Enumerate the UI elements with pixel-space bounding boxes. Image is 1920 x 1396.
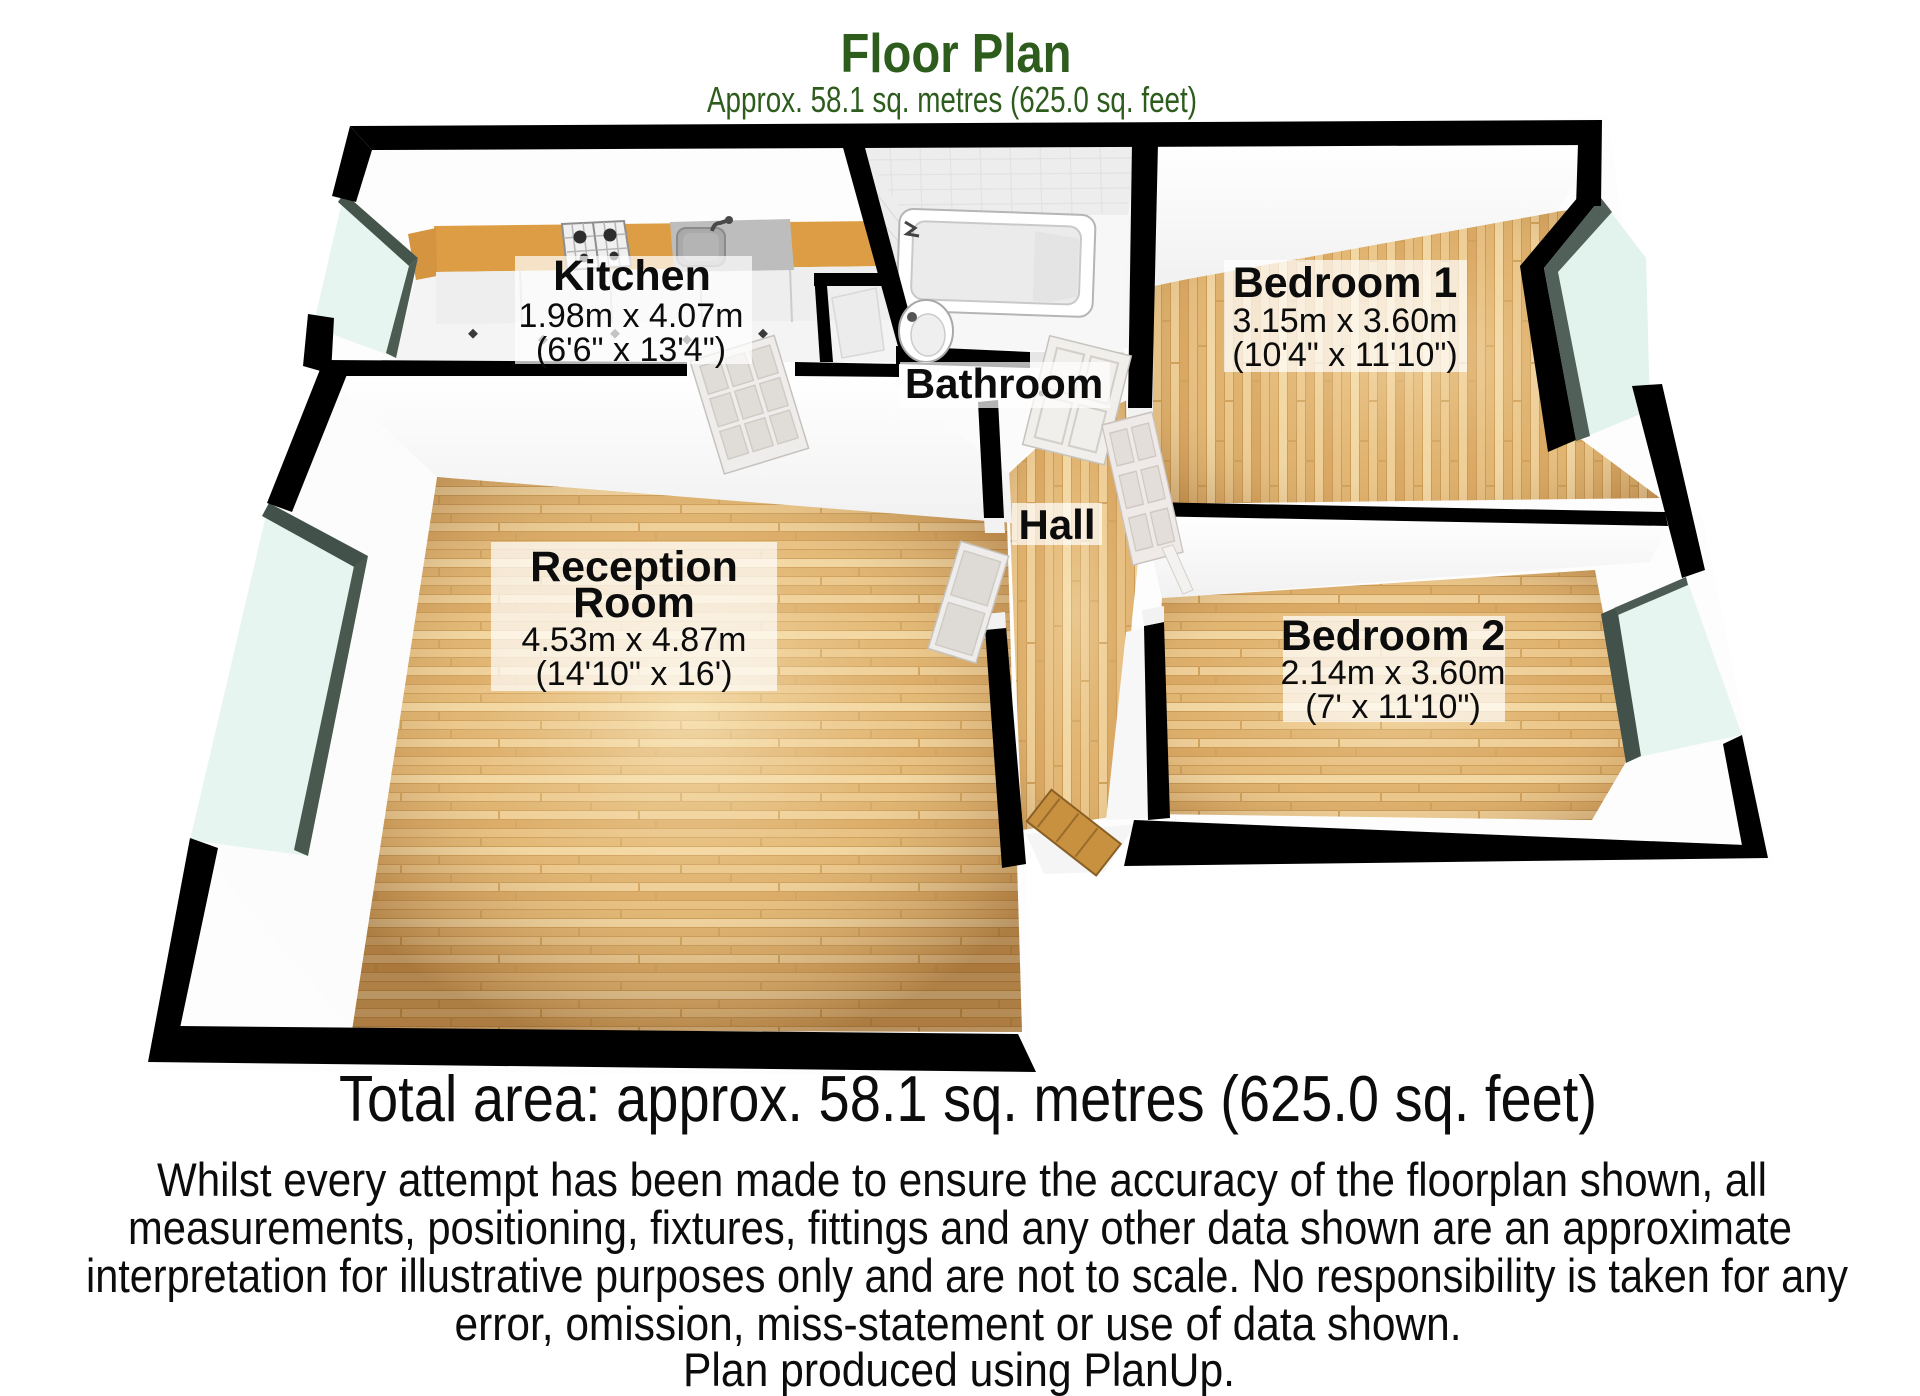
svg-text:2.14m x 3.60m: 2.14m x 3.60m: [1281, 654, 1506, 692]
svg-text:Hall: Hall: [1018, 501, 1095, 548]
svg-text:Kitchen: Kitchen: [553, 252, 711, 300]
svg-text:(10'4" x 11'10"): (10'4" x 11'10"): [1232, 336, 1458, 374]
svg-text:Bedroom 2: Bedroom 2: [1281, 612, 1506, 660]
svg-text:Approx. 58.1 sq. metres (625.: Approx. 58.1 sq. metres (625.0 sq. feet): [707, 79, 1197, 120]
svg-text:3.15m x 3.60m: 3.15m x 3.60m: [1233, 302, 1458, 340]
svg-text:Bathroom: Bathroom: [905, 360, 1103, 407]
svg-text:1.98m x 4.07m: 1.98m x 4.07m: [519, 297, 744, 335]
svg-text:Bedroom 1: Bedroom 1: [1233, 259, 1458, 307]
svg-text:(6'6" x 13'4"): (6'6" x 13'4"): [536, 331, 726, 369]
svg-text:(7' x 11'10"): (7' x 11'10"): [1305, 688, 1481, 726]
svg-text:Floor Plan: Floor Plan: [841, 22, 1072, 84]
svg-text:Whilst every attempt has been: Whilst every attempt has been made to en…: [157, 1153, 1767, 1206]
svg-text:4.53m x 4.87m: 4.53m x 4.87m: [522, 621, 747, 659]
svg-text:Room: Room: [573, 579, 695, 627]
svg-text:Total area: approx. 58.1 sq.: Total area: approx. 58.1 sq. metres (625…: [339, 1062, 1597, 1135]
svg-text:Plan produced using PlanUp.: Plan produced using PlanUp.: [683, 1343, 1235, 1396]
svg-text:(14'10" x 16'): (14'10" x 16'): [535, 655, 732, 693]
svg-text:interpretation for illustrativ: interpretation for illustrative purposes…: [86, 1249, 1848, 1302]
svg-text:measurements, positioning, fix: measurements, positioning, fixtures, fit…: [128, 1201, 1792, 1254]
